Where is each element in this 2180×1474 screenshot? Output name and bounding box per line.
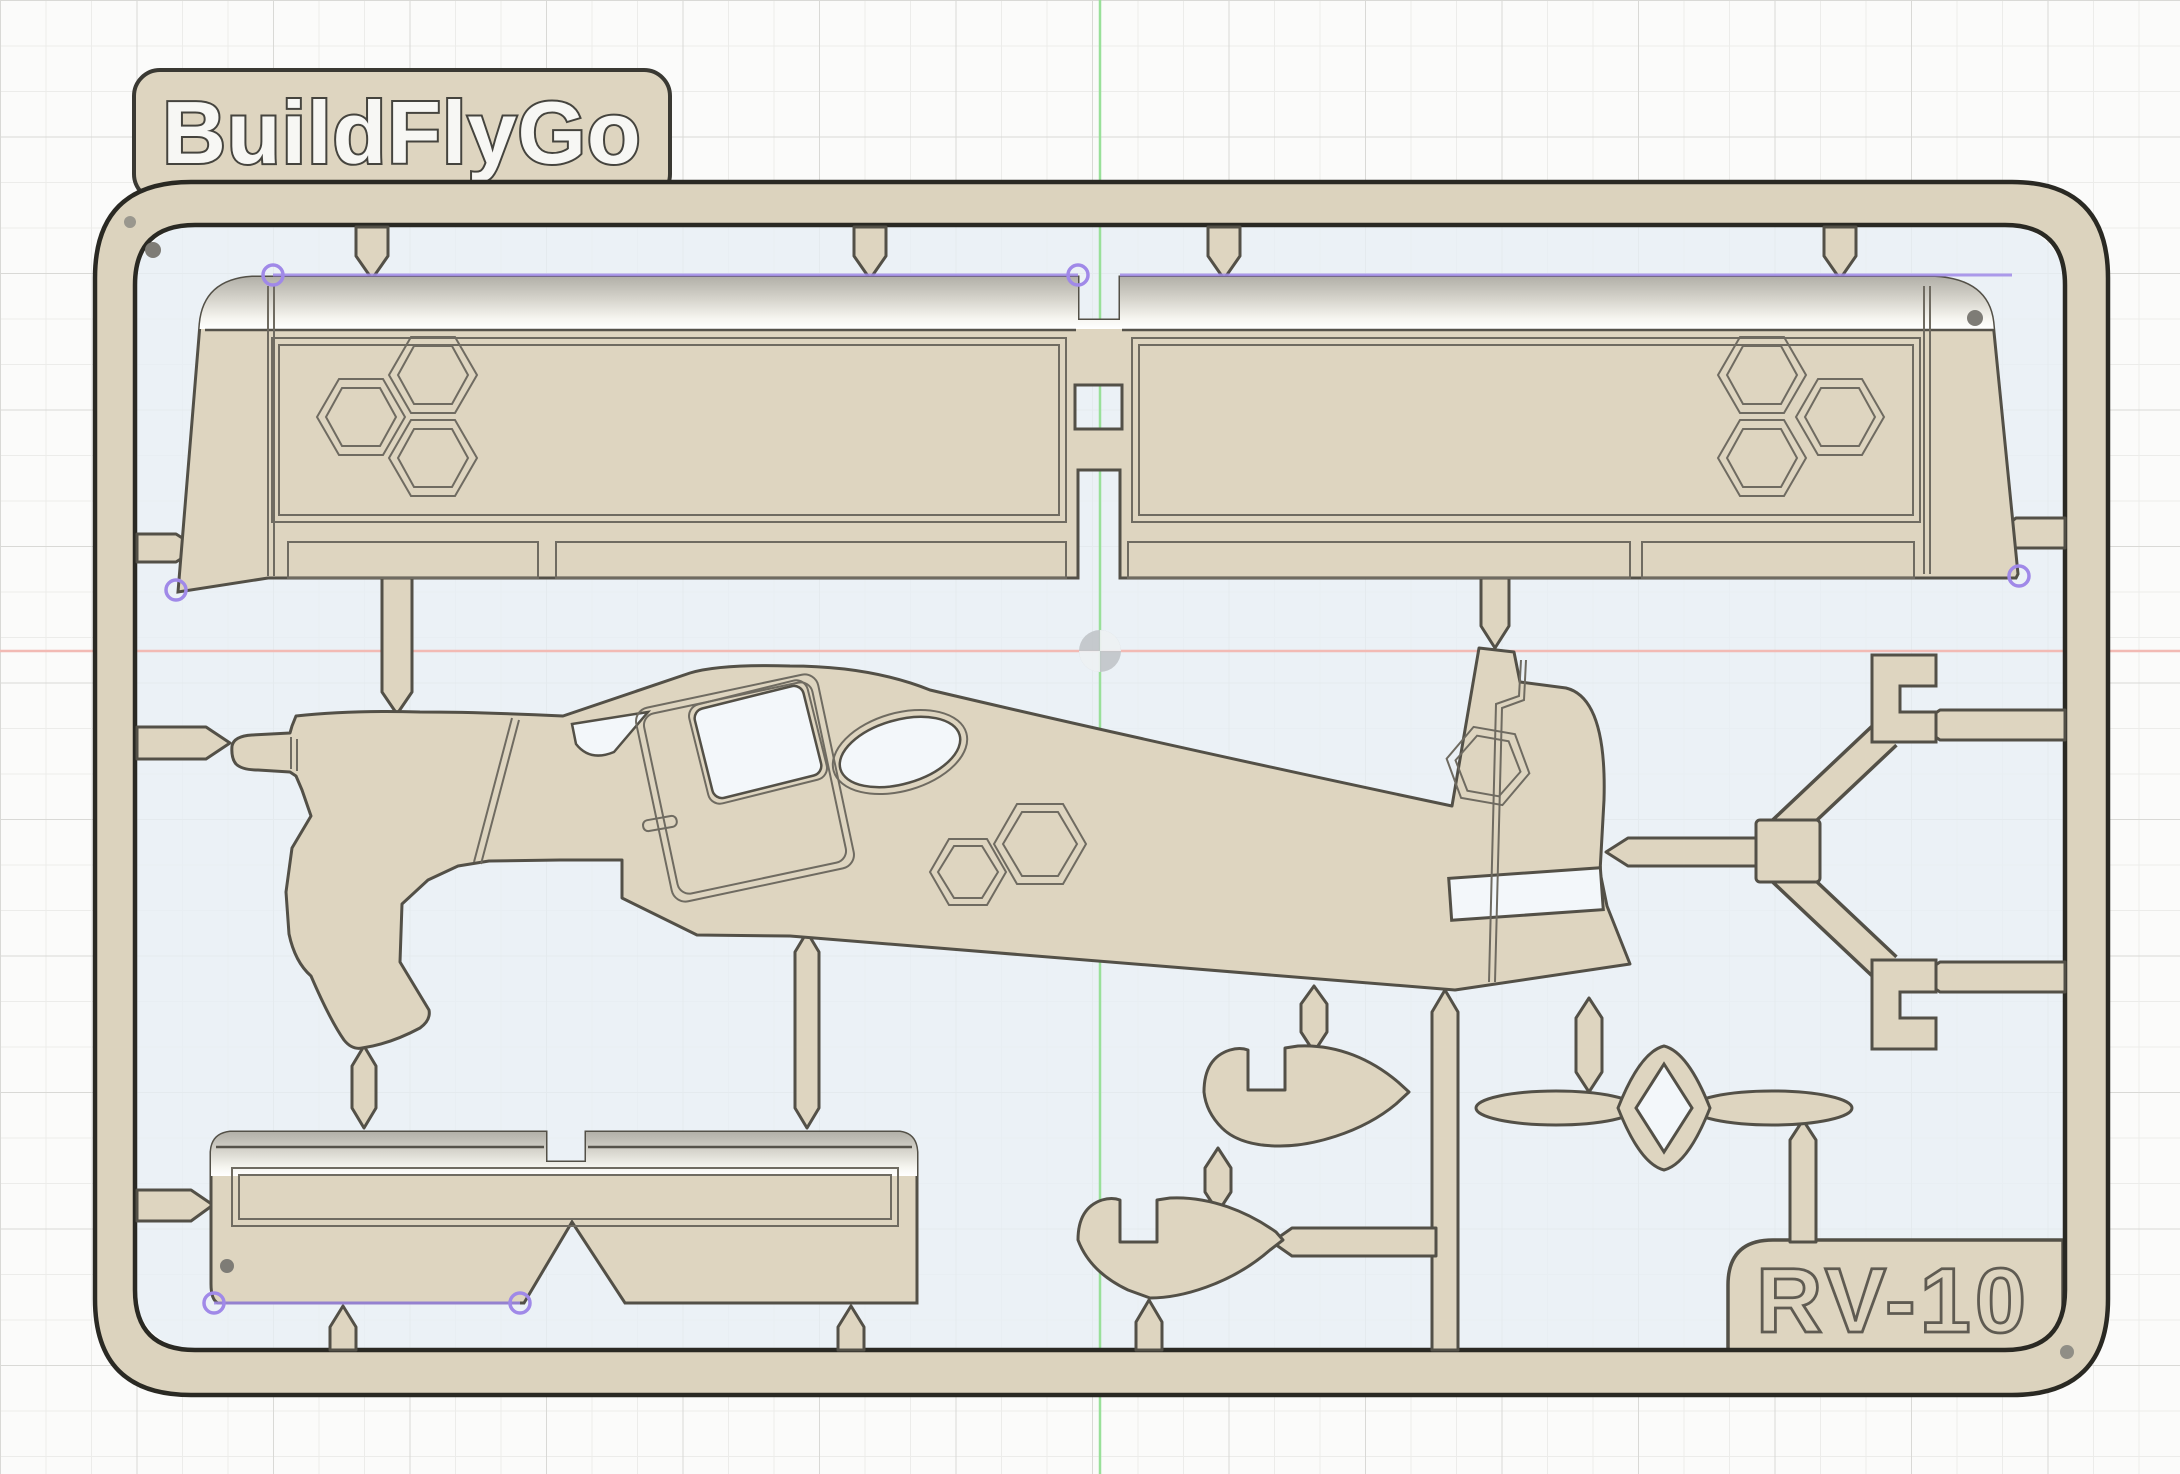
vertex-dot[interactable] xyxy=(220,1259,234,1273)
runner[interactable] xyxy=(1432,990,1458,1350)
prop-blade-right xyxy=(1692,1091,1852,1125)
model-label: RV-10 xyxy=(1756,1250,2030,1352)
prop-blade-left xyxy=(1476,1091,1636,1125)
model-tab[interactable]: RV-10 xyxy=(1728,1240,2063,1352)
brand-label: BuildFlyGo xyxy=(162,83,641,182)
runner[interactable] xyxy=(1790,1120,1816,1242)
vertex-dot[interactable] xyxy=(124,216,136,228)
stab-slot-hole xyxy=(1449,868,1604,921)
runner[interactable] xyxy=(1576,998,1602,1092)
vertex-dot[interactable] xyxy=(1967,310,1983,326)
vertex-dot[interactable] xyxy=(145,242,161,258)
runner[interactable] xyxy=(1272,1228,1436,1256)
runner[interactable] xyxy=(352,1046,376,1128)
cad-viewport: BuildFlyGo RV-10 xyxy=(0,0,2180,1474)
runner[interactable] xyxy=(1918,710,2065,740)
origin-quadrant-icon[interactable] xyxy=(1079,630,1121,672)
runner[interactable] xyxy=(1606,838,1768,866)
vertex-dot[interactable] xyxy=(2060,1345,2074,1359)
runner[interactable] xyxy=(795,932,819,1128)
runner[interactable] xyxy=(1918,962,2065,992)
runner[interactable] xyxy=(382,578,412,714)
